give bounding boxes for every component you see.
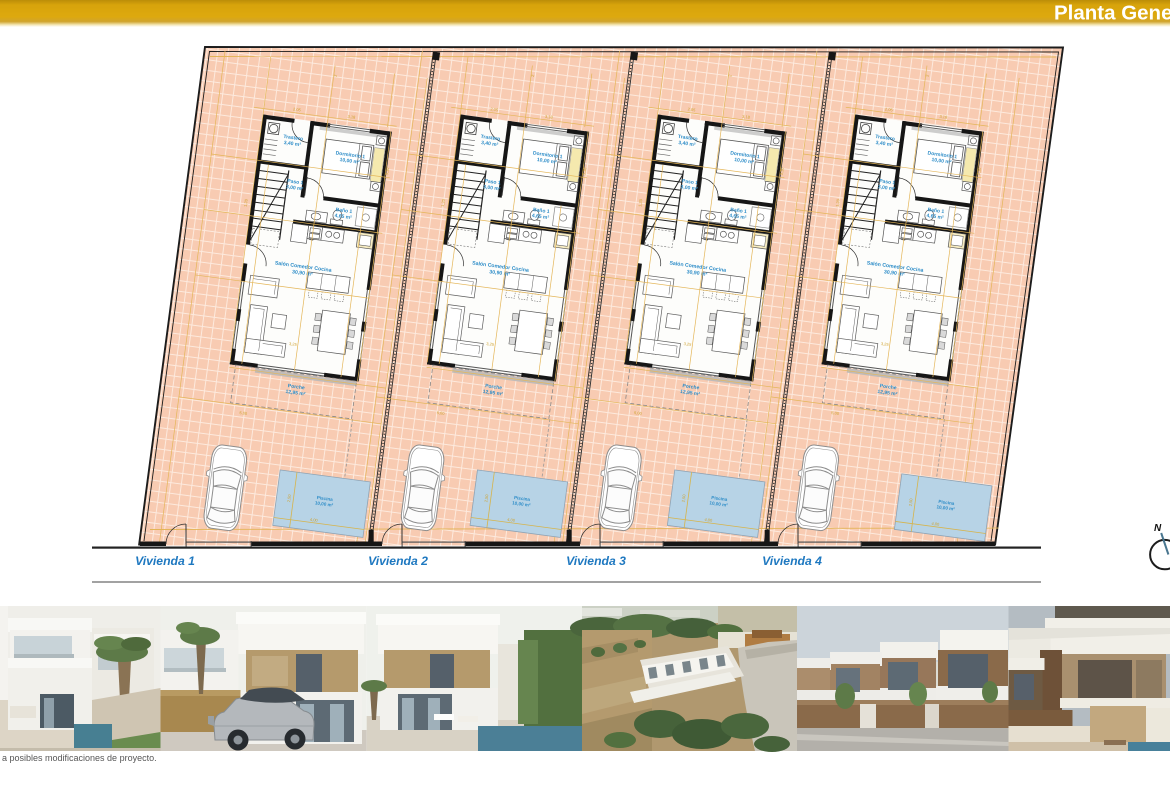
svg-text:Vivienda 3: Vivienda 3 — [566, 554, 626, 568]
svg-text:Vivienda 4: Vivienda 4 — [762, 554, 822, 568]
svg-text:a posibles modificaciones de p: a posibles modificaciones de proyecto. — [2, 753, 157, 763]
svg-text:Vivienda 2: Vivienda 2 — [368, 554, 428, 568]
svg-text:Planta General: Planta General — [1054, 2, 1170, 25]
svg-text:Vivienda 1: Vivienda 1 — [135, 554, 195, 568]
svg-text:N: N — [1154, 523, 1162, 534]
